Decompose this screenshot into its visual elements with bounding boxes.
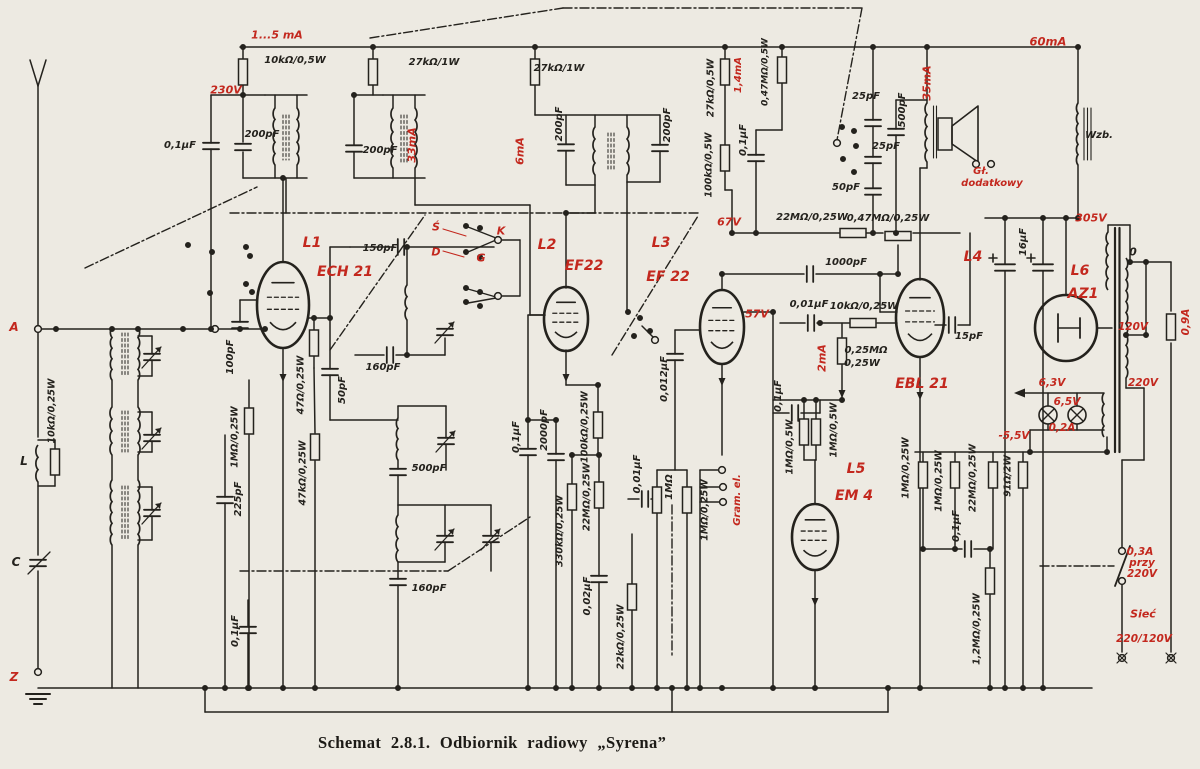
speaker [938, 106, 978, 162]
tubes [257, 262, 1097, 570]
wires [30, 47, 1171, 712]
schematic-drawing [0, 0, 1200, 769]
resistors [51, 57, 1176, 610]
dial-lamps [1039, 406, 1086, 424]
schematic-page: 1...5 mA230V33mA6mA1,4mA35mA60mA67V57V30… [0, 0, 1200, 769]
coils [36, 103, 1128, 562]
junction-dots [54, 45, 1149, 691]
tube-em4 [792, 504, 838, 570]
red-leaders [443, 229, 466, 257]
tube-ebl21 [896, 279, 944, 357]
tube-ef22-l3 [700, 290, 744, 364]
capacitors [28, 120, 1053, 633]
tube-ech21 [257, 262, 309, 348]
tube-ef22-l2 [544, 287, 588, 351]
ground [26, 694, 50, 704]
figure-caption: Schemat 2.8.1. Odbiornik radiowy „Syrena… [318, 733, 666, 753]
